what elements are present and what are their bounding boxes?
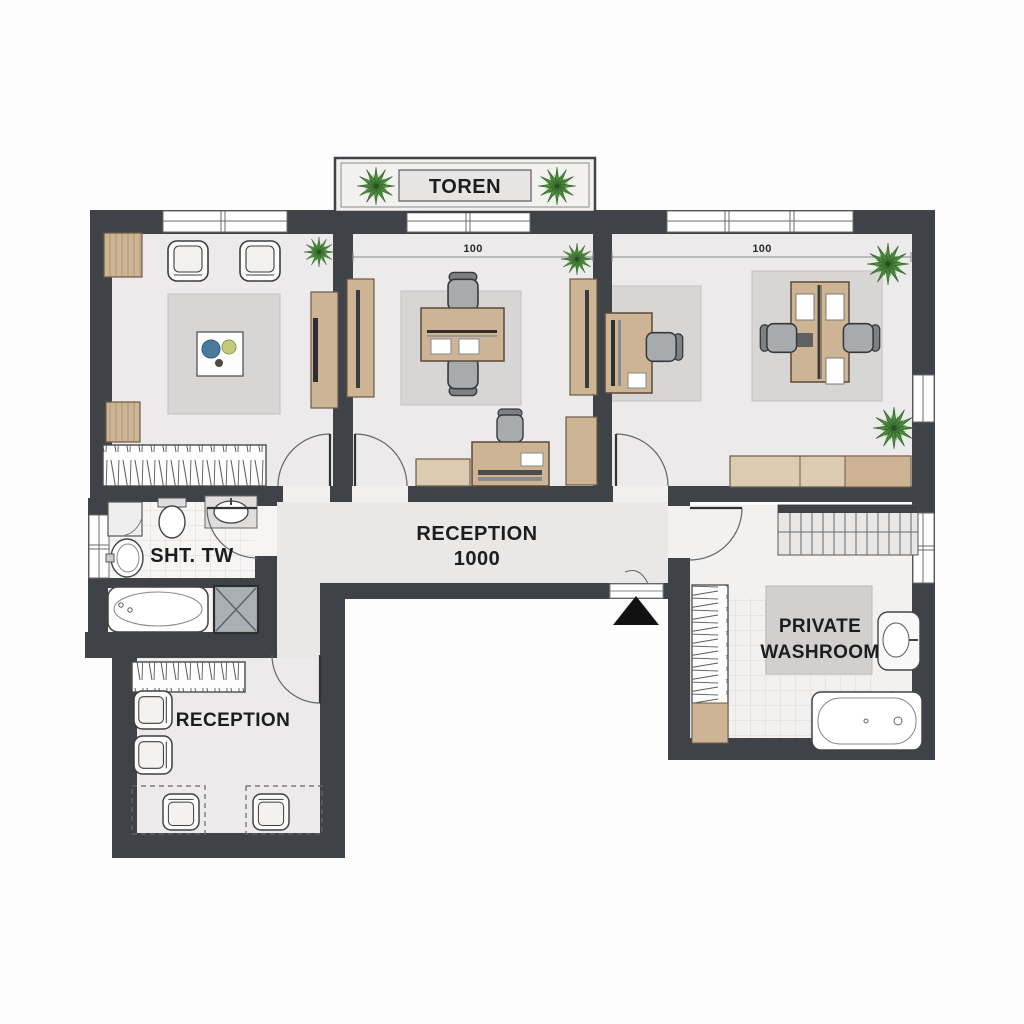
armchair-icon [163, 794, 199, 830]
wall-right [912, 210, 935, 760]
monitor-icon [826, 294, 844, 320]
wardrobe [132, 662, 245, 692]
floor-plan-canvas: TOREN [0, 0, 1024, 1024]
office-chair-icon [760, 324, 796, 353]
window-left-wall [89, 515, 109, 578]
window-right-wall-upper [913, 375, 934, 422]
reception-door-opening [277, 632, 320, 658]
coffee-table [197, 332, 243, 376]
balcony: TOREN [335, 158, 595, 212]
hallway-number: 1000 [454, 548, 501, 570]
corner-cabinet [104, 233, 142, 277]
wardrobe [692, 585, 728, 743]
wardrobe [103, 445, 266, 486]
keyboard-icon [431, 339, 451, 354]
monitor-icon [796, 294, 814, 320]
monitor-icon [611, 320, 615, 386]
tv-icon [313, 318, 318, 382]
wall-reception-bottom [112, 833, 345, 858]
washroom-label2: WASHROOM [760, 642, 879, 663]
armchair-icon [134, 736, 172, 774]
plate-icon [222, 340, 236, 354]
dimension-label: 100 [752, 243, 771, 255]
armchair-icon [253, 794, 289, 830]
lounge-door-opening [283, 486, 330, 502]
credenza [730, 456, 911, 487]
corner-cabinet [106, 402, 140, 442]
washroom-label: PRIVATE [779, 616, 861, 637]
keyboard-icon [459, 339, 479, 354]
bathroom-door-opening [255, 506, 277, 556]
bookshelf [570, 279, 597, 395]
bathroom-label: SHT. TW [150, 545, 234, 567]
floor-plan: TOREN [0, 0, 1024, 1024]
side-desk [472, 442, 549, 486]
bowl-icon [202, 340, 220, 358]
desk [421, 308, 504, 361]
reception-label: RECEPTION [176, 710, 290, 731]
paper-icon [521, 453, 543, 466]
bathtub-icon [812, 692, 922, 750]
bathtub-icon [108, 587, 208, 632]
office-chair-icon [646, 333, 682, 362]
dimension-label: 100 [463, 243, 482, 255]
sink-counter [205, 496, 257, 528]
office-chair-icon [448, 358, 478, 396]
window-top-right [667, 211, 853, 232]
tub-room [108, 586, 258, 633]
divider-screen-icon [818, 285, 820, 379]
window-balcony-doors [407, 211, 530, 232]
desk-item-icon [797, 333, 813, 347]
office-chair-icon [843, 324, 879, 353]
armchair-icon [240, 241, 280, 281]
washroom-door-opening [668, 506, 690, 558]
keyboard-icon [628, 373, 646, 388]
stairs-icon [778, 505, 918, 555]
toilet-icon [158, 498, 186, 538]
balcony-label: TOREN [429, 176, 501, 198]
double-desk [791, 282, 849, 384]
monitor-icon [826, 358, 844, 384]
window-top-left [163, 211, 287, 232]
low-cabinet [416, 459, 470, 486]
desk [605, 313, 652, 393]
office-chair-icon [448, 272, 478, 310]
armchair-icon [168, 241, 208, 281]
storage-cabinet [566, 417, 597, 485]
monitor-icon [427, 330, 497, 333]
decor-icon [215, 359, 223, 367]
corner-shower [108, 502, 142, 536]
wall-reception-right [320, 583, 345, 858]
entrance-arrow-icon [613, 596, 659, 625]
office-chair-icon [497, 409, 523, 442]
media-sideboard [311, 292, 338, 408]
sink-icon [878, 612, 920, 670]
hallway-label: RECEPTION [416, 523, 537, 545]
office-right-door-opening [613, 486, 668, 502]
shower-stall-icon [214, 586, 258, 633]
bookshelf [347, 279, 374, 397]
armchair-icon [134, 691, 172, 729]
office-middle-door-opening [352, 486, 408, 502]
